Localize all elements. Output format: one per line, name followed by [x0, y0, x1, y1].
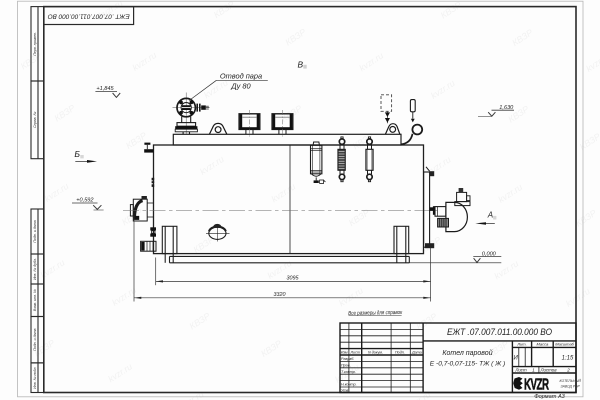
svg-text:Все размеры для справок: Все размеры для справок [348, 310, 402, 317]
svg-text:ЕЖТ .07.007.011.00.000 ВО: ЕЖТ .07.007.011.00.000 ВО [447, 327, 552, 337]
svg-text:Инв. № дубл.: Инв. № дубл. [33, 258, 37, 280]
svg-text:Е -0,7-0,07-115- ТЖ ( Ж ): Е -0,7-0,07-115- ТЖ ( Ж ) [430, 361, 505, 368]
svg-text:3095: 3095 [287, 276, 300, 282]
svg-text:И: И [513, 356, 518, 362]
svg-text:3320: 3320 [274, 292, 286, 298]
svg-text:Масштаб: Масштаб [555, 342, 574, 347]
svg-text:Инв. № подл.: Инв. № подл. [33, 367, 37, 389]
svg-text:Ду 80: Ду 80 [230, 82, 251, 91]
svg-text:Взам. инв. №: Взам. инв. № [33, 289, 37, 311]
svg-text:Н.контр.: Н.контр. [341, 383, 357, 387]
svg-text:Дата: Дата [411, 350, 422, 354]
svg-text:В: В [298, 59, 304, 69]
svg-text:1:15: 1:15 [562, 356, 574, 362]
svg-text:+1,845: +1,845 [96, 86, 114, 92]
svg-text:А: А [487, 210, 493, 219]
svg-text:Подп. и дата: Подп. и дата [33, 220, 37, 243]
svg-text:0,000: 0,000 [482, 251, 497, 257]
svg-text:Б: Б [74, 149, 80, 159]
svg-text:Разраб.: Разраб. [341, 357, 354, 361]
svg-text:N докум.: N докум. [368, 350, 383, 354]
svg-text:Котел паровой: Котел паровой [442, 349, 492, 357]
svg-text:Масса: Масса [536, 342, 549, 347]
svg-text:КОТЕЛЬНЫЙ: КОТЕЛЬНЫЙ [560, 379, 582, 383]
svg-text:Листов: Листов [540, 367, 558, 372]
svg-text:KVZR: KVZR [524, 377, 549, 394]
svg-text:1,630: 1,630 [499, 105, 514, 111]
svg-text:Справ. №: Справ. № [33, 112, 37, 128]
svg-text:2: 2 [566, 367, 570, 372]
svg-text:Подп. и дата: Подп. и дата [33, 328, 37, 351]
svg-text:ЕЖТ .07.007.011.00.000 ВО: ЕЖТ .07.007.011.00.000 ВО [47, 13, 130, 20]
svg-text:Перв. примен.: Перв. примен. [33, 32, 37, 56]
svg-text:+0,592: +0,592 [76, 198, 94, 204]
svg-text:Отвод пара: Отвод пара [220, 72, 262, 81]
svg-text:Т.контр.: Т.контр. [341, 370, 356, 374]
svg-text:Подп.: Подп. [395, 350, 405, 354]
svg-text:Лист: Лист [350, 350, 361, 354]
svg-text:Изм: Изм [341, 350, 348, 354]
svg-text:Формат А3: Формат А3 [534, 394, 565, 400]
svg-text:Утв.: Утв. [341, 389, 349, 393]
svg-text:Пров.: Пров. [341, 363, 351, 367]
svg-text:ЗАВОД РЭР: ЗАВОД РЭР [561, 384, 581, 388]
svg-text:Лит.: Лит. [516, 342, 526, 347]
svg-text:Лист: Лист [514, 367, 527, 372]
